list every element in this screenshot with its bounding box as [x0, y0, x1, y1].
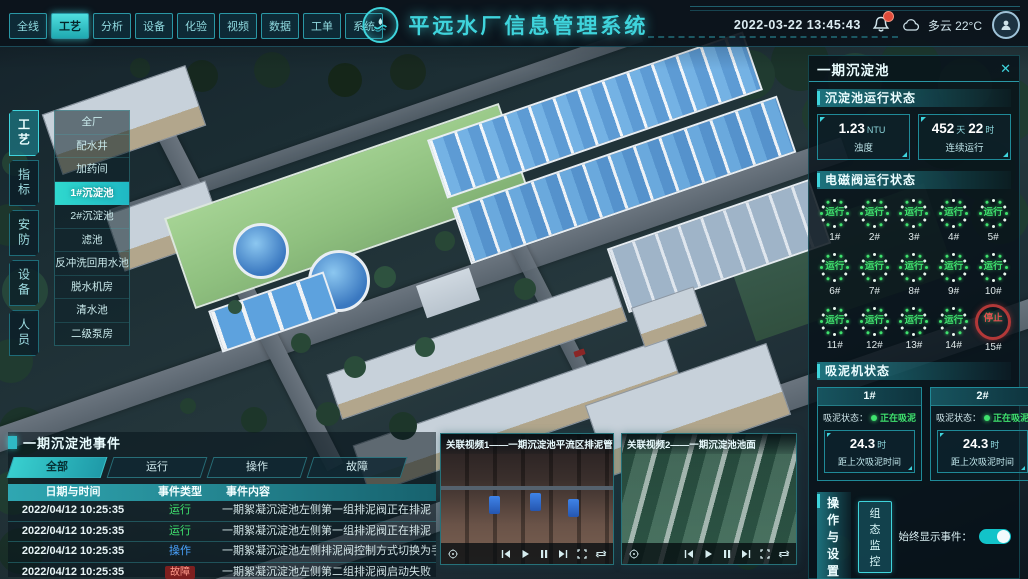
valve-status: 运行: [857, 196, 891, 230]
app-root: 全线工艺分析设备化验视频数据工单系统 平远水厂信息管理系统 2022-03-22…: [0, 0, 1028, 579]
valve-8#[interactable]: 运行8#: [894, 250, 934, 297]
video-art: [441, 486, 613, 490]
event-time: 2022/04/12 10:25:35: [8, 501, 138, 521]
topbar-tabs: 全线工艺分析设备化验视频数据工单系统: [9, 13, 383, 39]
datetime-label: 2022-03-22 13:45:43: [734, 18, 861, 32]
video-art: [568, 499, 579, 517]
hud-line: [690, 6, 1020, 7]
events-panel-title-row: 一期沉淀池事件: [8, 432, 436, 452]
valve-id: 13#: [894, 340, 934, 351]
valve-gauge: 运行: [897, 250, 931, 284]
valve-id: 9#: [934, 286, 974, 297]
machine-unit: 时: [877, 440, 886, 450]
valve-gauge: 运行: [937, 196, 971, 230]
title-bullet: [8, 436, 17, 449]
topbar-tab[interactable]: 视频: [219, 13, 257, 39]
valve-10#[interactable]: 运行10#: [973, 250, 1013, 297]
valve-status: 运行: [857, 250, 891, 284]
submenu-item[interactable]: 配水井: [55, 135, 129, 159]
section-header-suction: 吸泥机状态: [817, 362, 1011, 380]
valve-gauge: 运行: [976, 250, 1010, 284]
submenu-item[interactable]: 反冲洗回用水池: [55, 252, 129, 276]
skip-forward-icon[interactable]: [740, 548, 752, 560]
event-time: 2022/04/12 10:25:35: [8, 522, 138, 542]
stat-value: 1.23NTU: [839, 120, 889, 138]
section-header-ops: 操作与设置: [817, 492, 851, 579]
event-time: 2022/04/12 10:25:35: [8, 563, 138, 579]
events-tab[interactable]: 故障: [307, 457, 408, 478]
event-type: 运行: [138, 522, 222, 542]
topbar-tab[interactable]: 数据: [261, 13, 299, 39]
stat-card: 1.23NTU浊度: [817, 114, 910, 160]
valve-12#[interactable]: 运行12#: [855, 304, 895, 353]
video-1-controls: [441, 543, 613, 564]
valve-gauge: 运行: [818, 196, 852, 230]
valve-grid: 运行1#运行2#运行3#运行4#运行5#运行6#运行7#运行8#运行9#运行10…: [809, 194, 1019, 355]
valve-11#[interactable]: 运行11#: [815, 304, 855, 353]
panel-header: 一期沉淀池 ✕: [809, 56, 1019, 82]
video-art: [489, 496, 500, 514]
alarm-bell-icon[interactable]: [871, 15, 891, 35]
valve-gauge: 运行: [897, 196, 931, 230]
valve-13#[interactable]: 运行13#: [894, 304, 934, 353]
left-menu-item[interactable]: 安防: [9, 210, 39, 256]
valve-status: 运行: [897, 196, 931, 230]
loop-icon[interactable]: [595, 548, 607, 560]
valve-id: 8#: [894, 286, 934, 297]
fullscreen-icon[interactable]: [759, 548, 771, 560]
col-date: 日期与时间: [8, 484, 138, 501]
valve-gauge: 运行: [818, 250, 852, 284]
events-tab-label: 故障: [311, 458, 403, 477]
event-content: 一期絮凝沉淀池左侧第二组排泥阀启动失败: [222, 563, 436, 579]
col-type: 事件类型: [138, 484, 222, 501]
machine-status: 正在吸泥: [880, 411, 916, 424]
left-vertical-menu: 工艺指标安防设备人员: [9, 110, 39, 360]
valve-gauge: 运行: [976, 196, 1010, 230]
submenu-item[interactable]: 加药间: [55, 158, 129, 182]
valve-15#[interactable]: 停止15#: [973, 304, 1013, 353]
video-panel-2[interactable]: 关联视频2——一期沉淀池池面: [621, 433, 797, 565]
valve-id: 4#: [934, 232, 974, 243]
alarm-badge: [883, 11, 894, 22]
left-menu-item[interactable]: 设备: [9, 260, 39, 306]
valve-2#[interactable]: 运行2#: [855, 196, 895, 243]
table-row[interactable]: 2022/04/12 10:25:35故障一期絮凝沉淀池左侧第二组排泥阀启动失败: [8, 563, 436, 579]
valve-gauge: 运行: [897, 304, 931, 338]
brand: 平远水厂信息管理系统: [362, 7, 648, 43]
valve-gauge: 运行: [857, 250, 891, 284]
event-type: 操作: [138, 542, 222, 562]
topbar-tab[interactable]: 设备: [135, 13, 173, 39]
scada-monitor-button[interactable]: 组态监控: [858, 501, 891, 573]
valve-id: 12#: [855, 340, 895, 351]
valve-status: 运行: [937, 304, 971, 338]
valve-status: 停止: [978, 307, 1008, 337]
stat-number: 452: [932, 121, 955, 136]
events-tabs: 全部运行操作故障: [10, 457, 436, 478]
valve-id: 2#: [855, 232, 895, 243]
app-title: 平远水厂信息管理系统: [408, 10, 648, 40]
events-tab[interactable]: 运行: [107, 457, 208, 478]
machine-stat-box: 24.3时距上次吸泥时间: [824, 430, 915, 473]
valve-7#[interactable]: 运行7#: [855, 250, 895, 297]
valve-status: 运行: [818, 196, 852, 230]
video-2-title: 关联视频2——一期沉淀池池面: [622, 434, 796, 454]
table-row[interactable]: 2022/04/12 10:25:35运行一期絮凝沉淀池左侧第一组排泥阀正在排泥: [8, 522, 436, 543]
machine-value: 24.3: [850, 436, 875, 451]
submenu-item[interactable]: 清水池: [55, 299, 129, 323]
machine-id: 2#: [931, 388, 1028, 406]
valve-status: 运行: [937, 250, 971, 284]
video-art: [530, 493, 541, 511]
col-content: 事件内容: [222, 484, 436, 501]
left-menu-item[interactable]: 指标: [9, 160, 39, 206]
valve-3#[interactable]: 运行3#: [894, 196, 934, 243]
event-time: 2022/04/12 10:25:35: [8, 542, 138, 562]
run-status-stats: 1.23NTU浊度452天22时连续运行: [809, 112, 1019, 164]
video-panel-1[interactable]: 关联视频1——一期沉淀池平流区排泥管廊: [440, 433, 614, 565]
submenu-item[interactable]: 2#沉淀池: [55, 205, 129, 229]
valve-status: 运行: [818, 304, 852, 338]
valve-id: 14#: [934, 340, 974, 351]
ptz-pan-icon[interactable]: [447, 548, 459, 560]
valve-status: 运行: [976, 250, 1010, 284]
stat-value: 452天22时: [932, 120, 998, 138]
skip-back-icon[interactable]: [683, 548, 695, 560]
close-icon[interactable]: ✕: [1000, 62, 1011, 75]
topbar-tab[interactable]: 化验: [177, 13, 215, 39]
suction-machine-card: 1#吸泥状态：正在吸泥24.3时距上次吸泥时间: [817, 387, 922, 481]
topbar-tab[interactable]: 全线: [9, 13, 47, 39]
events-tab[interactable]: 操作: [207, 457, 308, 478]
topbar-tab[interactable]: 工艺: [51, 13, 89, 39]
machine-unit: 时: [990, 440, 999, 450]
valve-9#[interactable]: 运行9#: [934, 250, 974, 297]
table-row[interactable]: 2022/04/12 10:25:35操作一期絮凝沉淀池左侧排泥阀控制方式切换为…: [8, 542, 436, 563]
weather-widget: 多云 22°C: [901, 17, 982, 34]
event-type-badge: 故障: [165, 566, 195, 579]
stat-number: 22: [968, 121, 983, 136]
submenu-item[interactable]: 二级泵房: [55, 323, 129, 346]
pause-icon[interactable]: [721, 548, 733, 560]
weather-label: 多云 22°C: [928, 17, 982, 34]
valve-id: 1#: [815, 232, 855, 243]
machine-value-line: 24.3时: [827, 435, 912, 453]
machine-status: 正在吸泥: [993, 411, 1028, 424]
valve-gauge: 运行: [937, 250, 971, 284]
valve-status: 运行: [937, 196, 971, 230]
stat-label: 连续运行: [945, 140, 983, 154]
machine-stat-box: 24.3时距上次吸泥时间: [937, 430, 1028, 473]
user-avatar[interactable]: [992, 11, 1020, 39]
play-icon[interactable]: [519, 548, 531, 560]
event-type: 故障: [138, 563, 222, 579]
stat-unit: 时: [985, 125, 994, 135]
valve-id: 10#: [973, 286, 1013, 297]
events-table-body: 2022/04/12 10:25:35运行一期絮凝沉淀池左侧第一组排泥阀正在排泥…: [8, 501, 436, 579]
events-tab[interactable]: 全部: [7, 457, 108, 478]
ptz-pan-icon[interactable]: [628, 548, 640, 560]
section-header-valves: 电磁阀运行状态: [817, 171, 1011, 189]
valve-gauge: 运行: [857, 196, 891, 230]
event-content: 一期絮凝沉淀池左侧第一组排泥阀正在排泥: [222, 522, 436, 542]
machine-status-row: 吸泥状态：正在吸泥: [818, 406, 921, 426]
panel-title: 一期沉淀池: [817, 59, 890, 79]
valve-14#[interactable]: 运行14#: [934, 304, 974, 353]
stat-label: 浊度: [854, 140, 873, 154]
show-events-label: 始终显示事件：: [899, 529, 973, 544]
valve-id: 7#: [855, 286, 895, 297]
events-tab-label: 运行: [111, 458, 203, 477]
valve-gauge: 运行: [818, 304, 852, 338]
machine-value: 24.3: [963, 436, 988, 451]
valve-status: 运行: [897, 304, 931, 338]
submenu-item[interactable]: 全厂: [55, 111, 129, 135]
machine-status-row: 吸泥状态：正在吸泥: [931, 406, 1028, 426]
skip-back-icon[interactable]: [500, 548, 512, 560]
events-panel: 一期沉淀池事件 全部运行操作故障 日期与时间 事件类型 事件内容 2022/04…: [8, 432, 436, 577]
video-1-title: 关联视频1——一期沉淀池平流区排泥管廊: [441, 434, 613, 454]
submenu-item[interactable]: 脱水机房: [55, 276, 129, 300]
cloud-icon: [901, 17, 923, 33]
pause-icon[interactable]: [538, 548, 550, 560]
loop-icon[interactable]: [778, 548, 790, 560]
app-logo-icon: [362, 7, 398, 43]
toggle-knob: [997, 530, 1010, 543]
event-type-badge: 运行: [169, 504, 191, 516]
show-events-toggle[interactable]: [979, 529, 1011, 544]
stat-card: 452天22时连续运行: [918, 114, 1011, 160]
suction-machine-card: 2#吸泥状态：正在吸泥24.3时距上次吸泥时间: [930, 387, 1028, 481]
valve-status: 运行: [857, 304, 891, 338]
events-title: 一期沉淀池事件: [23, 433, 121, 452]
valve-1#[interactable]: 运行1#: [815, 196, 855, 243]
event-type-badge: 运行: [169, 525, 191, 537]
machine-value-label: 距上次吸泥时间: [827, 455, 912, 468]
valve-id: 6#: [815, 286, 855, 297]
play-icon[interactable]: [702, 548, 714, 560]
section-header-run-status: 沉淀池运行状态: [817, 89, 1011, 107]
event-content: 一期絮凝沉淀池左侧第一组排泥阀正在排泥: [222, 501, 436, 521]
machine-value-line: 24.3时: [940, 435, 1025, 453]
right-detail-panel: 一期沉淀池 ✕ 沉淀池运行状态 1.23NTU浊度452天22时连续运行 电磁阀…: [808, 55, 1020, 579]
topbar-info: 2022-03-22 13:45:43 多云 22°C: [734, 11, 1020, 39]
valve-id: 11#: [815, 340, 855, 351]
stat-unit: 天: [956, 125, 965, 135]
valve-status: 运行: [818, 250, 852, 284]
stat-number: 1.23: [839, 121, 865, 136]
valve-gauge: 停止: [975, 304, 1011, 340]
status-dot: [984, 415, 990, 421]
valve-status: 运行: [976, 196, 1010, 230]
left-menu-item[interactable]: 工艺: [9, 110, 39, 156]
events-tab-label: 全部: [11, 458, 103, 477]
ops-settings-row: 操作与设置 组态监控 始终显示事件：: [817, 492, 1011, 579]
valve-gauge: 运行: [937, 304, 971, 338]
machine-status-label: 吸泥状态：: [823, 411, 868, 424]
event-type-badge: 操作: [169, 545, 191, 557]
status-dot: [871, 415, 877, 421]
machine-value-label: 距上次吸泥时间: [940, 455, 1025, 468]
topbar-tab[interactable]: 分析: [93, 13, 131, 39]
events-tab-label: 操作: [211, 458, 303, 477]
process-submenu: 全厂配水井加药间1#沉淀池2#沉淀池滤池反冲洗回用水池脱水机房清水池二级泵房: [54, 110, 130, 346]
skip-forward-icon[interactable]: [557, 548, 569, 560]
left-menu-item[interactable]: 人员: [9, 310, 39, 356]
machine-status-label: 吸泥状态：: [936, 411, 981, 424]
event-content: 一期絮凝沉淀池左侧排泥阀控制方式切换为手动: [222, 542, 436, 562]
top-bar: 全线工艺分析设备化验视频数据工单系统 平远水厂信息管理系统 2022-03-22…: [0, 0, 1028, 47]
valve-id: 15#: [973, 342, 1013, 353]
valve-4#[interactable]: 运行4#: [934, 196, 974, 243]
topbar-tab[interactable]: 工单: [303, 13, 341, 39]
video-2-controls: [622, 543, 796, 564]
machine-id: 1#: [818, 388, 921, 406]
stat-unit: NTU: [867, 125, 886, 135]
valve-6#[interactable]: 运行6#: [815, 250, 855, 297]
valve-id: 5#: [973, 232, 1013, 243]
submenu-item[interactable]: 1#沉淀池: [55, 182, 129, 206]
valve-id: 3#: [894, 232, 934, 243]
valve-5#[interactable]: 运行5#: [973, 196, 1013, 243]
submenu-item[interactable]: 滤池: [55, 229, 129, 253]
valve-status: 运行: [897, 250, 931, 284]
fullscreen-icon[interactable]: [576, 548, 588, 560]
event-type: 运行: [138, 501, 222, 521]
table-row[interactable]: 2022/04/12 10:25:35运行一期絮凝沉淀池左侧第一组排泥阀正在排泥: [8, 501, 436, 522]
events-table-header: 日期与时间 事件类型 事件内容: [8, 484, 436, 501]
valve-gauge: 运行: [857, 304, 891, 338]
suction-machines: 1#吸泥状态：正在吸泥24.3时距上次吸泥时间2#吸泥状态：正在吸泥24.3时距…: [809, 385, 1019, 483]
